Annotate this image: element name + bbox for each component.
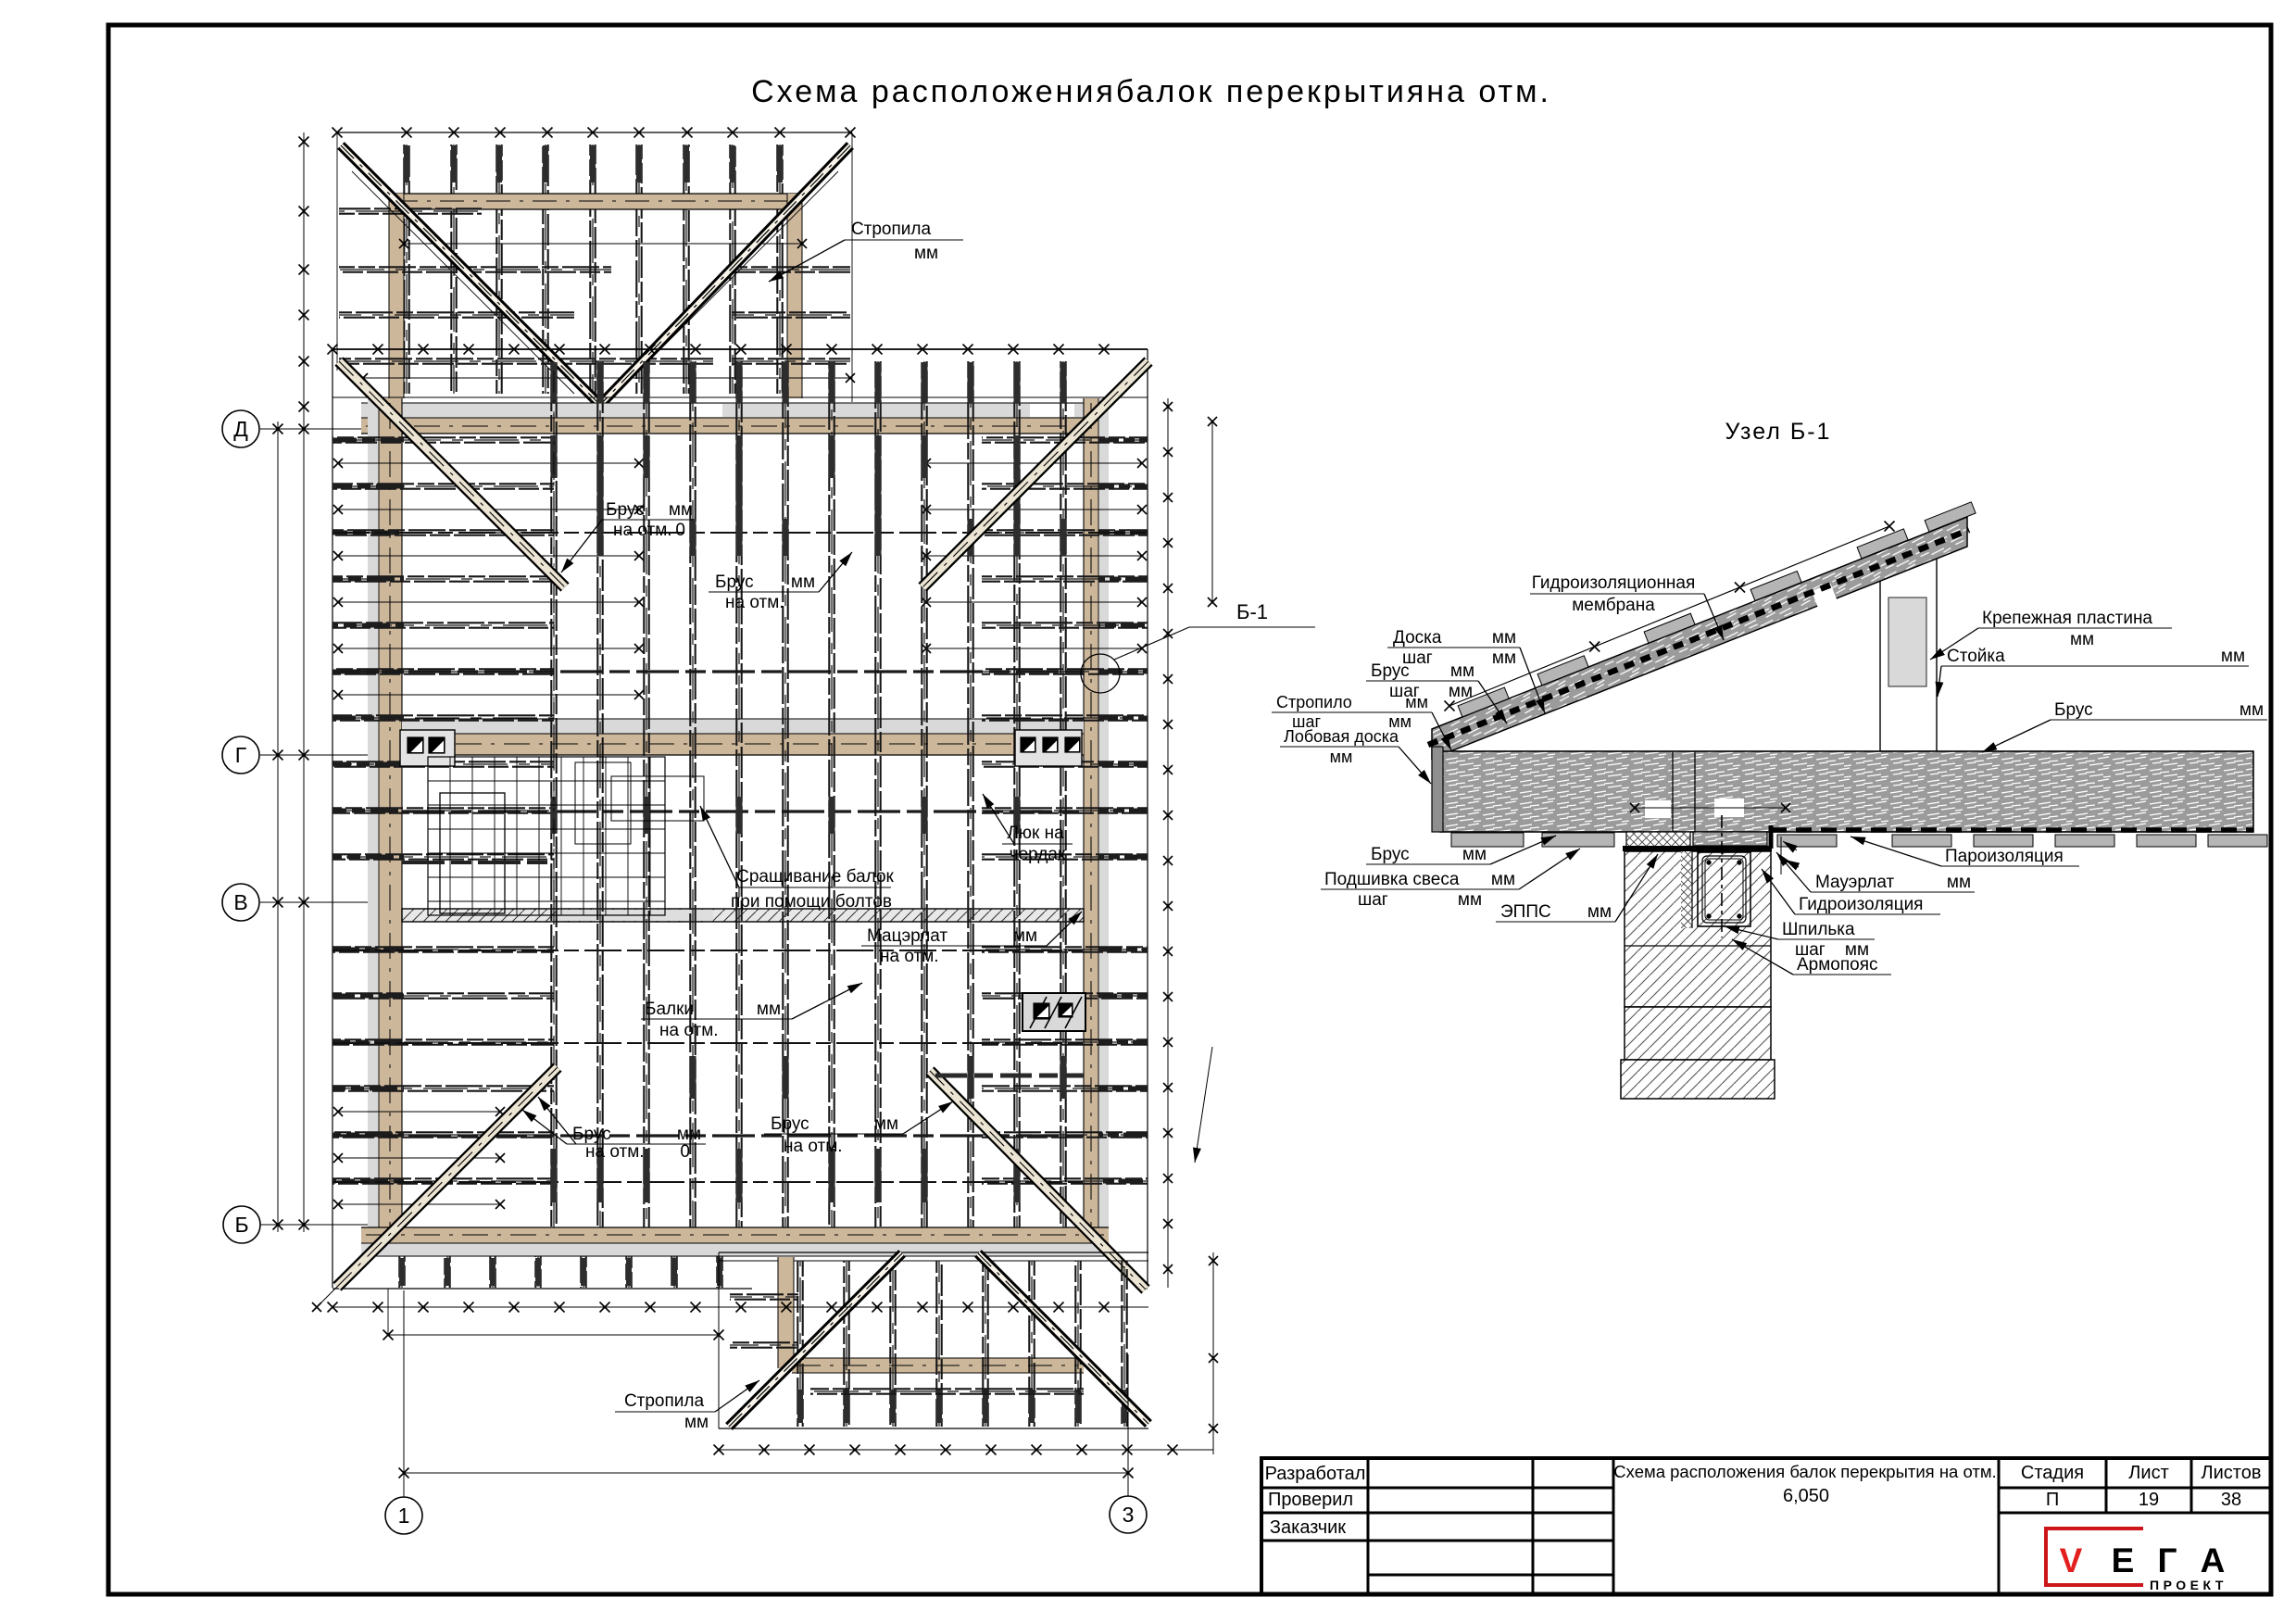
- svg-text:Стропила: Стропила: [624, 1391, 705, 1411]
- svg-text:на отм.: на отм.: [613, 521, 672, 540]
- svg-text:Сращивание балок: Сращивание балок: [736, 867, 894, 887]
- svg-text:мм: мм: [1587, 902, 1612, 922]
- svg-text:мм: мм: [669, 500, 693, 520]
- svg-text:Шпилька: Шпилька: [1782, 920, 1855, 939]
- svg-text:Б: Б: [234, 1213, 248, 1237]
- svg-text:мм: мм: [1450, 661, 1474, 681]
- svg-text:Брус: Брус: [572, 1125, 611, 1144]
- svg-text:мм: мм: [1492, 628, 1516, 648]
- svg-text:Балки: Балки: [645, 1000, 694, 1019]
- svg-text:Пароизоляция: Пароизоляция: [1945, 847, 2064, 866]
- svg-text:мм: мм: [1013, 926, 1037, 946]
- svg-text:при помощи болтов: при помощи болтов: [731, 892, 892, 912]
- svg-text:Доска: Доска: [1393, 628, 1442, 648]
- svg-text:мм: мм: [2221, 647, 2245, 666]
- svg-text:Проверил: Проверил: [1268, 1490, 1353, 1510]
- svg-text:Г: Г: [2158, 1541, 2177, 1579]
- svg-text:мм: мм: [791, 572, 815, 592]
- svg-text:мм: мм: [874, 1114, 898, 1134]
- svg-text:Мацэрлат: Мацэрлат: [867, 926, 947, 946]
- svg-text:на отм.: на отм.: [784, 1137, 843, 1156]
- svg-text:А: А: [2201, 1541, 2226, 1579]
- svg-text:мм: мм: [2070, 630, 2094, 649]
- svg-text:на отм.: на отм.: [659, 1021, 719, 1040]
- svg-text:Стадия: Стадия: [2021, 1463, 2084, 1483]
- svg-text:0: 0: [680, 1142, 690, 1162]
- svg-text:П: П: [2046, 1490, 2059, 1510]
- svg-text:Схема расположениябалок перекр: Схема расположениябалок перекрытияна отм…: [751, 74, 1551, 109]
- svg-text:Узел Б-1: Узел Б-1: [1725, 419, 1832, 445]
- svg-text:Схема расположения балок перек: Схема расположения балок перекрытия на о…: [1613, 1462, 1996, 1481]
- svg-text:ПРОЕКТ: ПРОЕКТ: [2150, 1578, 2227, 1592]
- svg-text:мм: мм: [914, 244, 938, 263]
- svg-text:мм: мм: [1405, 693, 1428, 711]
- svg-text:Стропило: Стропило: [1276, 693, 1352, 711]
- svg-text:38: 38: [2221, 1490, 2241, 1510]
- svg-text:Брус: Брус: [2054, 700, 2093, 720]
- svg-text:мм: мм: [1491, 870, 1515, 889]
- svg-text:шаг: шаг: [1358, 890, 1388, 910]
- svg-text:0: 0: [675, 521, 685, 540]
- svg-text:ЭППС: ЭППС: [1500, 902, 1551, 922]
- svg-text:на отм.: на отм.: [725, 593, 784, 612]
- svg-text:Гидроизоляционная: Гидроизоляционная: [1532, 573, 1696, 593]
- svg-text:Лобовая доска: Лобовая доска: [1284, 727, 1399, 746]
- svg-text:мембрана: мембрана: [1572, 596, 1655, 615]
- svg-text:Листов: Листов: [2202, 1463, 2262, 1483]
- svg-text:Лист: Лист: [2128, 1463, 2168, 1483]
- svg-text:Подшивка свеса: Подшивка свеса: [1324, 870, 1460, 889]
- svg-text:мм: мм: [757, 1000, 781, 1019]
- svg-text:на отм.: на отм.: [880, 947, 939, 966]
- svg-text:V: V: [2060, 1541, 2083, 1579]
- svg-text:мм: мм: [2240, 700, 2264, 720]
- svg-text:Люк на: Люк на: [1007, 824, 1064, 843]
- svg-text:Г: Г: [235, 743, 247, 767]
- svg-text:мм: мм: [1462, 845, 1487, 864]
- svg-text:чердак: чердак: [1010, 845, 1066, 864]
- svg-text:Брус: Брус: [1371, 845, 1410, 864]
- svg-text:Б-1: Б-1: [1236, 600, 1268, 623]
- svg-text:мм: мм: [1947, 873, 1971, 892]
- svg-text:Крепежная пластина: Крепежная пластина: [1982, 609, 2152, 628]
- svg-text:Брус: Брус: [771, 1114, 809, 1134]
- svg-text:6,050: 6,050: [1783, 1486, 1829, 1506]
- svg-text:на отм.: на отм.: [585, 1142, 645, 1162]
- svg-text:мм: мм: [1492, 648, 1516, 668]
- svg-text:Заказчик: Заказчик: [1270, 1517, 1346, 1538]
- svg-text:3: 3: [1123, 1503, 1135, 1527]
- svg-text:мм: мм: [1458, 890, 1482, 910]
- svg-text:Стропила: Стропила: [851, 220, 932, 239]
- svg-text:Стойка: Стойка: [1947, 647, 2005, 666]
- svg-text:Е: Е: [2112, 1541, 2135, 1579]
- svg-text:Д: Д: [233, 417, 248, 441]
- svg-text:Разработал: Разработал: [1265, 1464, 1366, 1484]
- svg-text:Брус: Брус: [715, 572, 754, 592]
- svg-text:Мауэрлат: Мауэрлат: [1815, 873, 1895, 892]
- svg-text:19: 19: [2139, 1490, 2159, 1510]
- svg-text:мм: мм: [1449, 682, 1473, 701]
- svg-text:мм: мм: [684, 1413, 709, 1432]
- svg-text:Брус: Брус: [1371, 661, 1410, 681]
- svg-text:мм: мм: [1330, 748, 1353, 766]
- svg-text:Брус: Брус: [606, 500, 645, 520]
- svg-text:Гидроизоляция: Гидроизоляция: [1799, 895, 1923, 914]
- svg-text:мм: мм: [677, 1125, 701, 1144]
- svg-text:1: 1: [398, 1503, 410, 1528]
- svg-text:Армопояс: Армопояс: [1797, 955, 1878, 975]
- svg-text:В: В: [233, 890, 247, 914]
